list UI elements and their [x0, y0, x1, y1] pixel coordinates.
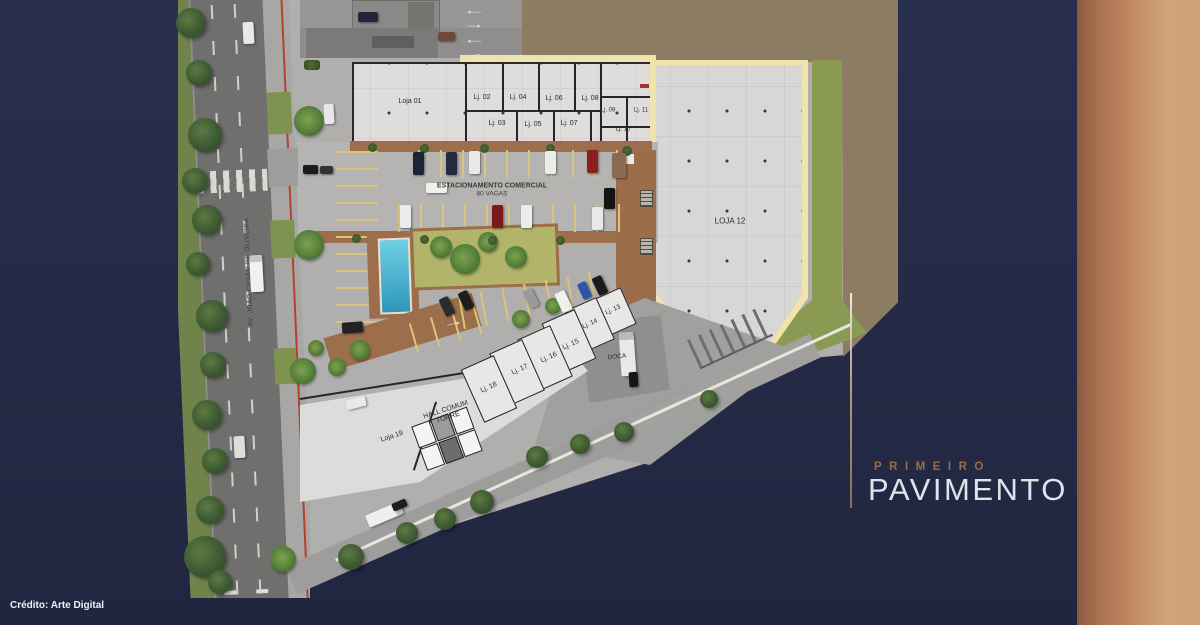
- tree: [470, 490, 494, 514]
- unit-label-lj11: Lj. 11: [634, 108, 648, 115]
- palm-tree: [290, 358, 316, 384]
- shrub: [488, 236, 497, 245]
- shop-wall: [465, 62, 467, 145]
- car: [320, 166, 333, 174]
- tree: [188, 118, 222, 152]
- car: [492, 205, 503, 228]
- gatehouse-dark: [408, 2, 434, 28]
- lane-arrow-right: →: [463, 18, 486, 30]
- title-main: PAVIMENTO: [868, 472, 1068, 508]
- shop-wall: [626, 96, 628, 145]
- shrub: [368, 143, 377, 152]
- loja12-floor: [654, 62, 806, 350]
- parking-row: [398, 150, 638, 178]
- unit-label-lj03: Lj. 03: [488, 120, 505, 128]
- tree: [202, 448, 228, 474]
- car: [628, 372, 638, 388]
- car: [446, 152, 457, 175]
- tree: [208, 570, 232, 594]
- tree: [186, 252, 210, 276]
- shop-door-red: [640, 84, 649, 88]
- tree: [192, 205, 222, 235]
- copper-strip: [1077, 0, 1200, 625]
- unit-label-lj08: Lj. 08: [581, 95, 598, 103]
- car: [587, 150, 598, 173]
- tree: [176, 8, 206, 38]
- stair-icon: [640, 238, 653, 255]
- shrub: [420, 235, 429, 244]
- tree: [396, 522, 418, 544]
- van: [612, 153, 626, 178]
- unit-label-lj06: Lj. 06: [545, 95, 562, 103]
- car: [413, 152, 424, 175]
- shrub: [304, 60, 320, 70]
- unit-label-lj07: Lj. 07: [560, 120, 577, 128]
- tree: [182, 168, 208, 194]
- palm-tree: [350, 340, 370, 360]
- stop-dash: [256, 589, 268, 594]
- car: [233, 436, 245, 459]
- floorplan-poster: AV. JOÃO CESAR DE OLIVEIRA ← → ← → →: [0, 0, 1200, 625]
- palm-tree: [430, 236, 452, 258]
- unit-label-loja12: LOJA 12: [715, 218, 746, 227]
- lawn-strip: [812, 60, 842, 305]
- car: [358, 12, 378, 22]
- unit-label-lj05: Lj. 05: [524, 121, 541, 129]
- car: [438, 32, 455, 41]
- tree-pit: [267, 92, 293, 135]
- palm-tree: [505, 246, 527, 268]
- car: [604, 188, 615, 209]
- palm-tree: [270, 546, 296, 572]
- parking-label-line2: 80 VAGAS: [437, 190, 547, 197]
- unit-label-lj02: Lj. 02: [473, 94, 490, 102]
- car: [469, 151, 480, 174]
- lane-arrow-left: ←: [463, 4, 486, 16]
- leader-line: [850, 293, 852, 508]
- tree: [338, 544, 364, 570]
- unit-label-lj04: Lj. 04: [509, 94, 526, 102]
- car: [521, 205, 532, 228]
- palm-tree: [450, 244, 480, 274]
- credit-text: Crédito: Arte Digital: [10, 600, 104, 611]
- palm-tree: [294, 106, 324, 136]
- shop-wall: [502, 62, 504, 112]
- palm-tree: [294, 230, 324, 260]
- car: [242, 22, 254, 45]
- tree: [614, 422, 634, 442]
- car: [323, 104, 334, 124]
- tree-pit: [270, 220, 296, 259]
- unit-label-lj09: Lj. 09: [601, 108, 616, 115]
- shop-wall: [465, 110, 602, 112]
- unit-label-lj10: Lj. 10: [616, 127, 631, 134]
- lane-arrow-left: ←: [463, 33, 486, 45]
- car: [545, 151, 556, 174]
- car: [400, 205, 411, 228]
- car: [303, 165, 318, 174]
- shop-wall: [600, 62, 602, 145]
- palm-tree: [512, 310, 530, 328]
- shrub: [480, 144, 489, 153]
- unit-label-loja01: Loja 01: [399, 98, 422, 106]
- parking-label-line1: ESTACIONAMENTO COMERCIAL: [437, 183, 547, 191]
- stair-icon: [640, 190, 653, 207]
- palm-tree: [328, 358, 346, 376]
- shop-wall: [538, 62, 540, 112]
- tree: [434, 508, 456, 530]
- tree: [200, 352, 226, 378]
- tree: [192, 400, 222, 430]
- car: [592, 207, 603, 230]
- parking-label: ESTACIONAMENTO COMERCIAL 80 VAGAS: [437, 183, 547, 198]
- tree: [186, 60, 212, 86]
- tree: [196, 300, 228, 332]
- shrub: [556, 236, 565, 245]
- pool: [378, 237, 413, 314]
- tree: [570, 434, 590, 454]
- car: [342, 321, 364, 333]
- shrub: [352, 234, 361, 243]
- tree: [196, 496, 224, 524]
- truck: [249, 255, 264, 293]
- tree: [526, 446, 548, 468]
- tree: [700, 390, 718, 408]
- shop-wall: [574, 62, 576, 112]
- palm-tree: [308, 340, 324, 356]
- ramp-plaque: [372, 36, 414, 48]
